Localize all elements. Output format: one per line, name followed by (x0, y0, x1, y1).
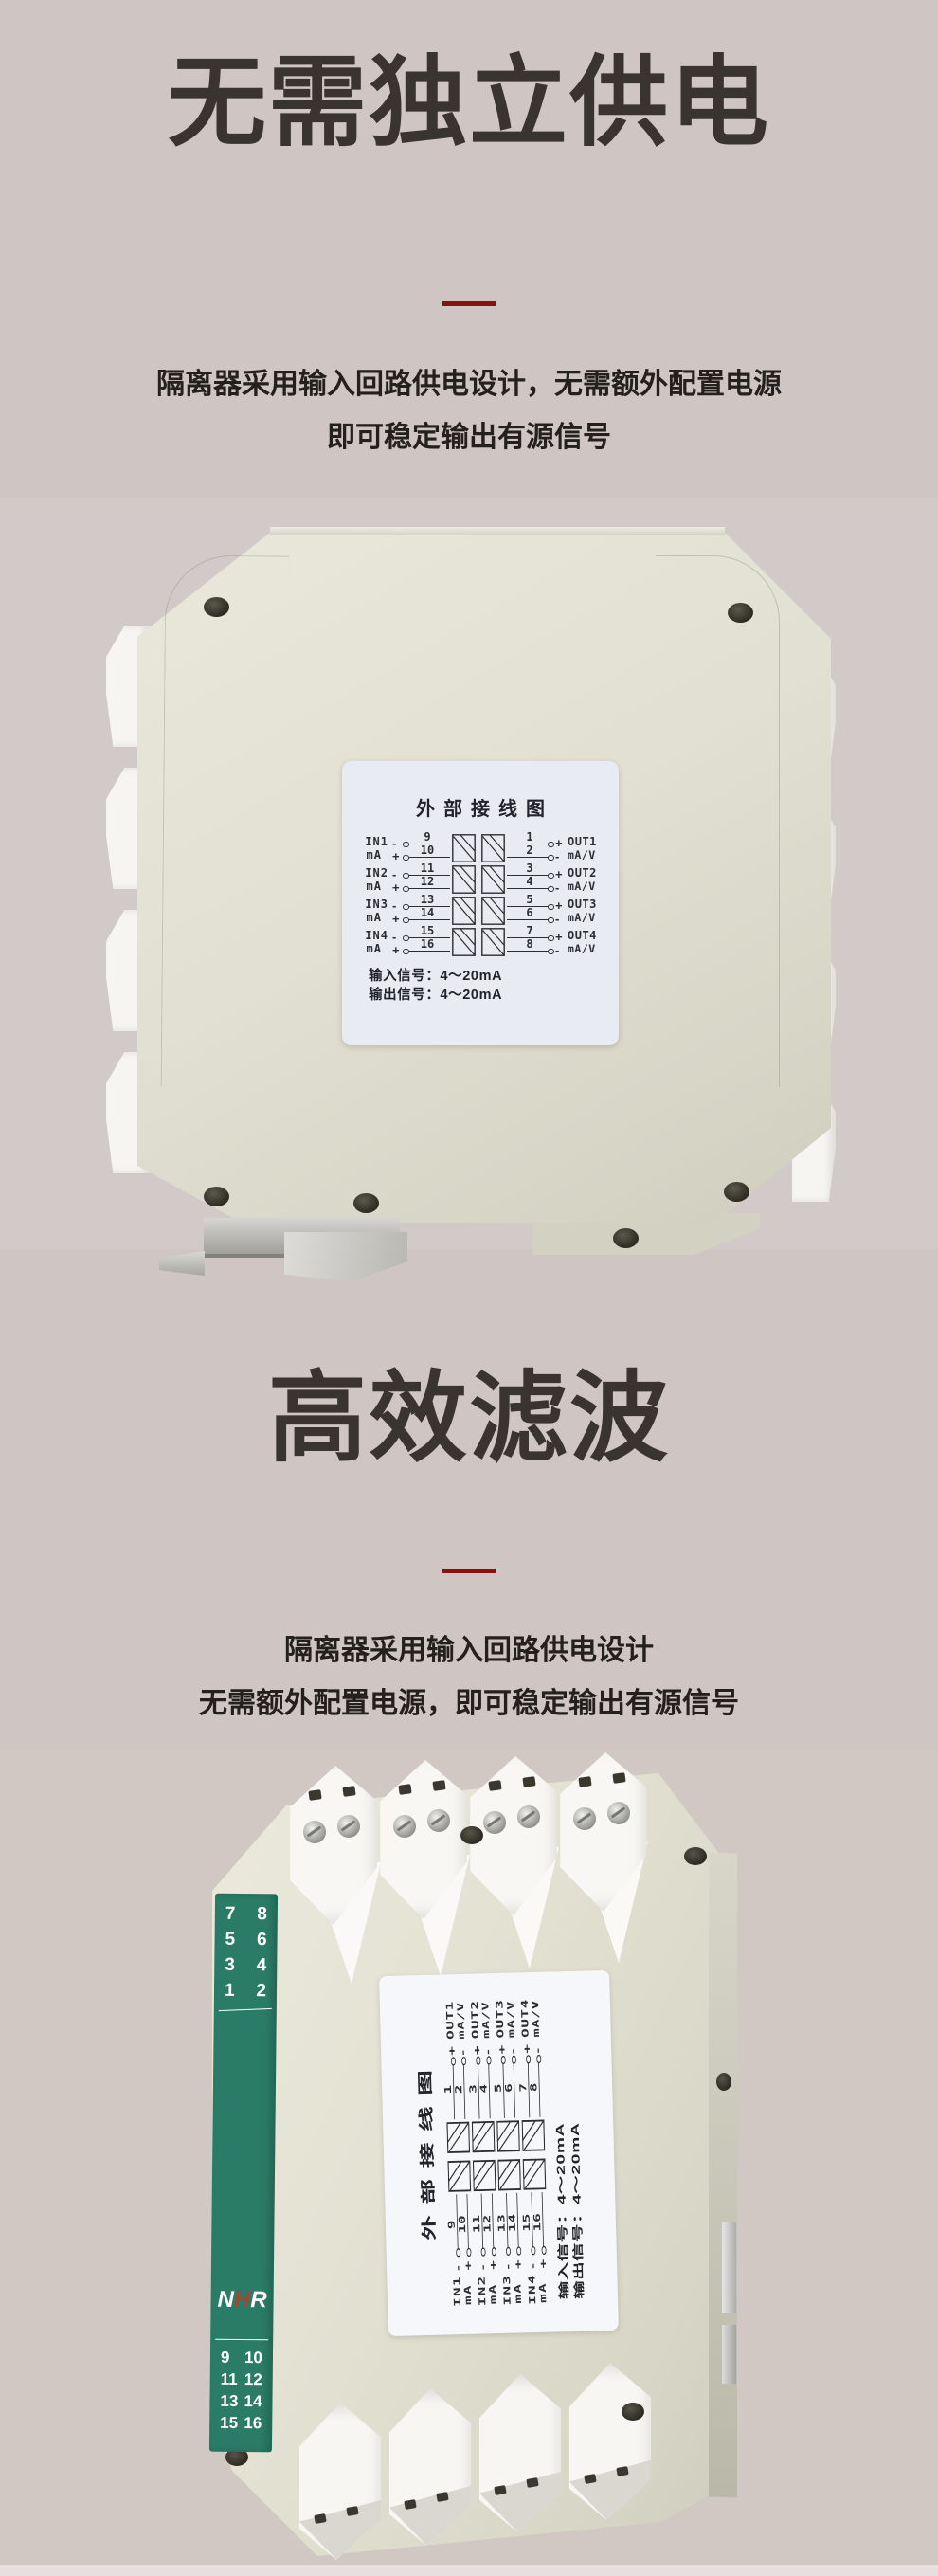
terminal-number: 10 (244, 2347, 262, 2368)
terminal-number: 12 (421, 875, 434, 888)
section1-divider (442, 301, 496, 306)
terminal-dot (548, 917, 554, 924)
plus-sign: + (461, 2260, 473, 2270)
wiring-label: 外部接线图 IN1mA -+ 9 10 1 2 (342, 761, 619, 1045)
terminal-screw (607, 1802, 630, 1824)
terminal-number: 13 (496, 2214, 507, 2232)
plus-sign: + (512, 2259, 523, 2269)
plus-sign: + (392, 849, 400, 863)
minus-sign: - (477, 2264, 488, 2270)
output-wire: 8 (507, 951, 552, 952)
wire-hole (488, 1780, 501, 1791)
isolation-symbol (521, 2119, 546, 2190)
strip-top-numbers: 78 56 34 12 (214, 1901, 278, 2005)
terminal-number: 1 (442, 2085, 453, 2095)
terminal-screw (427, 1809, 450, 1832)
out1-label: OUT1 (568, 835, 597, 848)
output-wire: 2 (507, 857, 552, 858)
minus-sign: - (532, 2048, 543, 2054)
minus-sign: - (392, 930, 396, 944)
wiring-channel-1: IN1mA -+ 9 10 1 2 +- OUT1mA/V (352, 834, 609, 862)
terminal-dot (403, 855, 409, 862)
strip-bottom-numbers: 910 1112 1314 1516 (209, 2347, 273, 2435)
minus-sign: - (457, 2050, 468, 2056)
strip-number-row: 56 (214, 1927, 277, 1953)
terminal-dot (403, 949, 409, 955)
screw-hole (728, 603, 753, 623)
din-rail-clip-tab (159, 1251, 205, 1276)
enclosure-side-face (709, 1852, 737, 2497)
wire-hole (578, 1776, 591, 1787)
section1-description: 隔离器采用输入回路供电设计，无需额外配置电源 即可稳定输出有源信号 (0, 358, 938, 464)
terminal-dot (491, 2248, 496, 2257)
out2-label: OUT2 (568, 866, 597, 880)
input-wire: 12 (491, 2193, 493, 2253)
out1-unit: mA/V (455, 2002, 466, 2039)
terminal-number: 8 (526, 937, 532, 951)
isolation-symbol (452, 928, 505, 956)
terminal-screw (517, 1805, 540, 1828)
section2-heading: 高效滤波 (0, 1365, 938, 1473)
terminal-number: 10 (421, 844, 434, 857)
minus-sign: - (555, 880, 559, 895)
strip-number-row: 34 (214, 1952, 277, 1979)
strip-number-row: 1314 (209, 2390, 272, 2413)
out4-label: OUT4 (518, 1999, 530, 2038)
section2-desc-line2: 无需额外配置电源，即可稳定输出有源信号 (0, 1678, 938, 1731)
isolation-symbol (471, 2121, 496, 2192)
terminal-dot (535, 2055, 541, 2063)
strip-divider-line (215, 2339, 268, 2341)
terminal-number: 14 (244, 2390, 262, 2412)
minus-sign: - (555, 849, 559, 863)
minus-sign: - (501, 2264, 513, 2270)
plus-sign: + (392, 912, 400, 926)
wire-hole (522, 1776, 535, 1787)
terminal-dot (403, 886, 409, 893)
in2-label: IN2 (365, 866, 388, 880)
section1-desc-line2: 即可稳定输出有源信号 (0, 411, 938, 464)
terminal-number: 14 (421, 906, 434, 919)
in3-unit: mA (512, 2283, 523, 2304)
terminal-number: 5 (526, 893, 532, 906)
input-wire: 16 (405, 951, 450, 952)
plus-sign: + (392, 880, 400, 895)
strip-number-row: 1516 (209, 2412, 272, 2435)
minus-sign: - (527, 2263, 538, 2269)
terminal-number: 7 (526, 924, 532, 937)
wire-hole (398, 1784, 411, 1795)
terminal-number: 10 (456, 2215, 467, 2233)
terminal-dot (403, 917, 409, 924)
terminal-number: 9 (445, 2220, 456, 2229)
terminal-dot (403, 935, 409, 942)
in1-label: IN1 (451, 2276, 462, 2307)
terminal-dot (548, 935, 554, 942)
wire-hole (308, 1789, 321, 1801)
wiring-diagram-title: 外部接线图 (410, 1985, 442, 2326)
out2-label: OUT2 (469, 2000, 480, 2039)
terminal-number: 2 (453, 2085, 463, 2095)
output-wire: 6 (513, 2058, 514, 2117)
terminal-dot (525, 2055, 531, 2063)
terminal-number: 16 (244, 2412, 262, 2434)
plus-sign: + (487, 2260, 498, 2270)
terminal-number: 15 (220, 2412, 238, 2434)
terminal-number: 13 (421, 893, 434, 906)
out4-unit: mA/V (530, 2000, 541, 2037)
terminal-number-strip: 78 56 34 12 NHR 910 1112 1314 1516 (209, 1894, 278, 2453)
terminal-dot (486, 2056, 492, 2064)
terminal-number: 3 (467, 2084, 478, 2094)
in1-unit: mA (367, 848, 382, 862)
terminal-screw (303, 1821, 326, 1843)
terminal-number: 8 (528, 2082, 538, 2092)
terminal-screw (337, 1815, 360, 1838)
plus-sign: + (496, 2044, 507, 2054)
out3-unit: mA/V (504, 2001, 515, 2038)
terminal-number: 3 (526, 862, 532, 875)
minus-sign: - (392, 836, 396, 850)
out2-unit: mA/V (479, 2002, 491, 2039)
plus-sign: + (555, 898, 563, 913)
in3-label: IN3 (501, 2275, 513, 2306)
input-wire: 14 (405, 919, 450, 920)
output-wire: 4 (488, 2059, 490, 2118)
screw-hole (204, 1187, 229, 1206)
isolator-front-photo: 外部接线图 IN1mA -+ 9 10 1 2 (106, 523, 836, 1293)
output-wire: 8 (537, 2058, 539, 2117)
input-wire: 10 (466, 2194, 468, 2254)
isolation-symbol (452, 834, 505, 862)
wiring-diagram-grid: IN1mA -+ 9 10 1 2 +- OUT1mA/V (352, 834, 609, 956)
wiring-diagram: 外部接线图 IN1mA -+ 9 10 1 2 (410, 1981, 588, 2326)
in3-unit: mA (367, 911, 382, 924)
wire-hole (432, 1780, 445, 1791)
minus-sign: - (555, 943, 559, 957)
output-wire: 6 (507, 919, 552, 920)
input-wire: 16 (541, 2192, 543, 2252)
din-rail-clip-plate (284, 1232, 407, 1281)
in3-label: IN3 (365, 898, 388, 911)
terminal-dot (455, 2249, 460, 2258)
in2-unit: mA (487, 2283, 498, 2304)
terminal-number: 8 (257, 1901, 267, 1927)
in4-unit: mA (536, 2282, 548, 2303)
terminal-number: 1 (225, 1978, 235, 2004)
out4-unit: mA/V (568, 942, 596, 955)
terminal-number: 11 (471, 2215, 482, 2233)
terminal-number: 4 (257, 1952, 267, 1978)
section2-description: 隔离器采用输入回路供电设计 无需额外配置电源，即可稳定输出有源信号 (0, 1624, 938, 1731)
terminal-number: 9 (424, 830, 430, 844)
wire-hole (342, 1786, 355, 1797)
terminal-number: 15 (421, 924, 434, 937)
strip-number-row: 12 (214, 1978, 277, 2005)
terminal-dot (548, 873, 554, 880)
terminal-number: 3 (225, 1952, 235, 1978)
out3-unit: mA/V (568, 911, 596, 924)
din-rail-clip-metal (722, 2222, 736, 2313)
in4-label: IN4 (365, 929, 388, 942)
output-wire: 4 (507, 888, 552, 889)
terminal-number: 7 (225, 1901, 236, 1927)
isolation-symbol (452, 865, 505, 894)
strip-number-row: 910 (210, 2347, 273, 2369)
out4-label: OUT4 (568, 929, 597, 942)
terminal-number: 13 (220, 2390, 238, 2412)
out1-unit: mA/V (568, 848, 596, 862)
terminal-number: 16 (532, 2213, 543, 2231)
wiring-channel-2: IN2mA -+ 11 12 3 4 +- OUT2mA/V (352, 865, 609, 894)
terminal-number: 7 (517, 2083, 528, 2093)
terminal-dot (500, 2056, 506, 2064)
terminal-number: 12 (481, 2215, 493, 2233)
terminal-dot (548, 904, 554, 911)
wiring-diagram: 外部接线图 IN1mA -+ 9 10 1 2 (352, 793, 609, 1005)
isolation-symbol (446, 2121, 471, 2192)
isolator-side-photo: 78 56 34 12 NHR 910 1112 1314 1516 外部接线图 (142, 1749, 805, 2565)
terminal-number: 15 (520, 2214, 532, 2232)
isolation-symbol (452, 897, 505, 925)
wiring-diagram-title: 外部接线图 (352, 793, 609, 821)
signal-spec: 输入信号：4～20mA 输出信号：4～20mA (549, 1981, 587, 2322)
terminal-number: 11 (221, 2368, 238, 2390)
terminal-dot (531, 2247, 536, 2256)
terminal-number: 11 (421, 862, 434, 875)
input-signal-spec: 输入信号：4～20mA (369, 967, 609, 986)
plus-sign: + (392, 943, 400, 957)
screw-hole (204, 597, 229, 617)
terminal-dot (480, 2248, 486, 2257)
terminal-number: 14 (506, 2214, 517, 2232)
terminal-screw (393, 1815, 416, 1838)
input-wire: 12 (405, 888, 450, 889)
in1-label: IN1 (365, 835, 388, 848)
in2-unit: mA (367, 880, 382, 893)
minus-sign: - (451, 2265, 462, 2271)
terminal-number: 2 (256, 1978, 266, 2004)
output-wire: 2 (462, 2059, 464, 2119)
enclosure-crease-line (161, 554, 290, 1087)
wiring-diagram-grid: IN1mA -+ 9 10 1 2 +- OUT1mA/V (442, 1982, 550, 2325)
plus-sign: + (445, 2046, 457, 2056)
screw-hole (724, 1182, 749, 1202)
out1-label: OUT1 (443, 2001, 455, 2040)
terminal-number: 1 (526, 830, 532, 844)
wiring-label-rotated: 外部接线图 IN1mA -+ 9 10 1 2 (379, 1970, 619, 2336)
out3-label: OUT3 (494, 2000, 505, 2039)
strip-number-row: 78 (215, 1901, 278, 1928)
in1-unit: mA (461, 2284, 473, 2305)
in4-unit: mA (367, 942, 382, 955)
screw-hole (716, 2073, 731, 2091)
wire-hole (612, 1772, 625, 1784)
terminal-number: 5 (225, 1927, 235, 1952)
din-rail-clip-metal (722, 2325, 736, 2384)
minus-sign: - (555, 912, 559, 926)
minus-sign: - (481, 2049, 493, 2055)
terminal-screw (573, 1807, 596, 1830)
plus-sign: + (471, 2045, 482, 2055)
terminal-dot (460, 2057, 466, 2065)
screw-hole (613, 1228, 639, 1248)
terminal-dot (548, 886, 554, 893)
page-bottom-strip (0, 2565, 938, 2576)
terminal-dot (548, 949, 554, 955)
nhr-logo: NHR (210, 2287, 273, 2314)
in4-label: IN4 (526, 2274, 537, 2305)
wiring-channel-4: IN4mA -+ 15 16 7 8 +- OUT4mA/V (352, 928, 609, 956)
terminal-dot (511, 2056, 516, 2064)
wiring-channel-3: IN3mA -+ 13 14 5 6 +- OUT3mA/V (352, 897, 609, 925)
terminal-number: 16 (421, 937, 434, 951)
input-wire: 10 (405, 857, 450, 858)
terminal-dot (466, 2248, 472, 2257)
terminal-number: 12 (244, 2368, 262, 2390)
output-signal-spec: 输出信号：4～20mA (369, 986, 609, 1005)
plus-sign: + (555, 867, 563, 881)
terminal-dot (403, 873, 409, 880)
terminal-dot (541, 2246, 547, 2255)
section2-desc-line1: 隔离器采用输入回路供电设计 (0, 1624, 938, 1678)
screw-hole (622, 2403, 644, 2421)
terminal-number: 9 (221, 2347, 230, 2368)
screw-hole (353, 1193, 379, 1213)
out3-label: OUT3 (568, 898, 597, 911)
plus-sign: + (555, 930, 563, 944)
in2-label: IN2 (476, 2275, 487, 2306)
strip-number-row: 1112 (210, 2368, 273, 2391)
enclosure-crease-line (656, 555, 780, 1087)
strip-divider-line (219, 2008, 272, 2011)
terminal-number: 6 (257, 1927, 267, 1952)
terminal-number: 4 (526, 875, 532, 888)
terminal-dot (475, 2057, 480, 2065)
enclosure-top-edge (270, 527, 725, 535)
plus-sign: + (555, 836, 563, 850)
terminal-dot (548, 842, 554, 848)
terminal-number: 2 (526, 844, 532, 857)
section1-heading: 无需独立供电 (0, 49, 938, 157)
terminal-dot (515, 2247, 521, 2256)
promo-page: 无需独立供电 隔离器采用输入回路供电设计，无需额外配置电源 即可稳定输出有源信号 (0, 0, 938, 2576)
minus-sign: - (392, 867, 396, 881)
isolation-symbol (496, 2120, 521, 2191)
terminal-dot (403, 904, 409, 911)
section2-divider (442, 1569, 496, 1573)
terminal-screw (483, 1811, 506, 1834)
terminal-dot (450, 2057, 456, 2065)
input-wire: 14 (516, 2193, 518, 2253)
terminal-dot (548, 855, 554, 862)
section1-desc-line1: 隔离器采用输入回路供电设计，无需额外配置电源 (0, 358, 938, 411)
plus-sign: + (520, 2044, 532, 2054)
terminal-number: 4 (478, 2084, 488, 2094)
screw-hole (460, 1826, 483, 1844)
minus-sign: - (392, 898, 396, 913)
terminal-number: 6 (503, 2083, 514, 2093)
terminal-dot (505, 2247, 511, 2256)
terminal-number: 5 (492, 2083, 502, 2093)
terminal-dot (403, 842, 409, 848)
plus-sign: + (537, 2259, 549, 2268)
out2-unit: mA/V (568, 880, 596, 893)
screw-hole (684, 1847, 707, 1865)
minus-sign: - (506, 2048, 517, 2054)
signal-spec: 输入信号：4～20mA 输出信号：4～20mA (352, 967, 609, 1005)
terminal-number: 6 (526, 906, 532, 919)
